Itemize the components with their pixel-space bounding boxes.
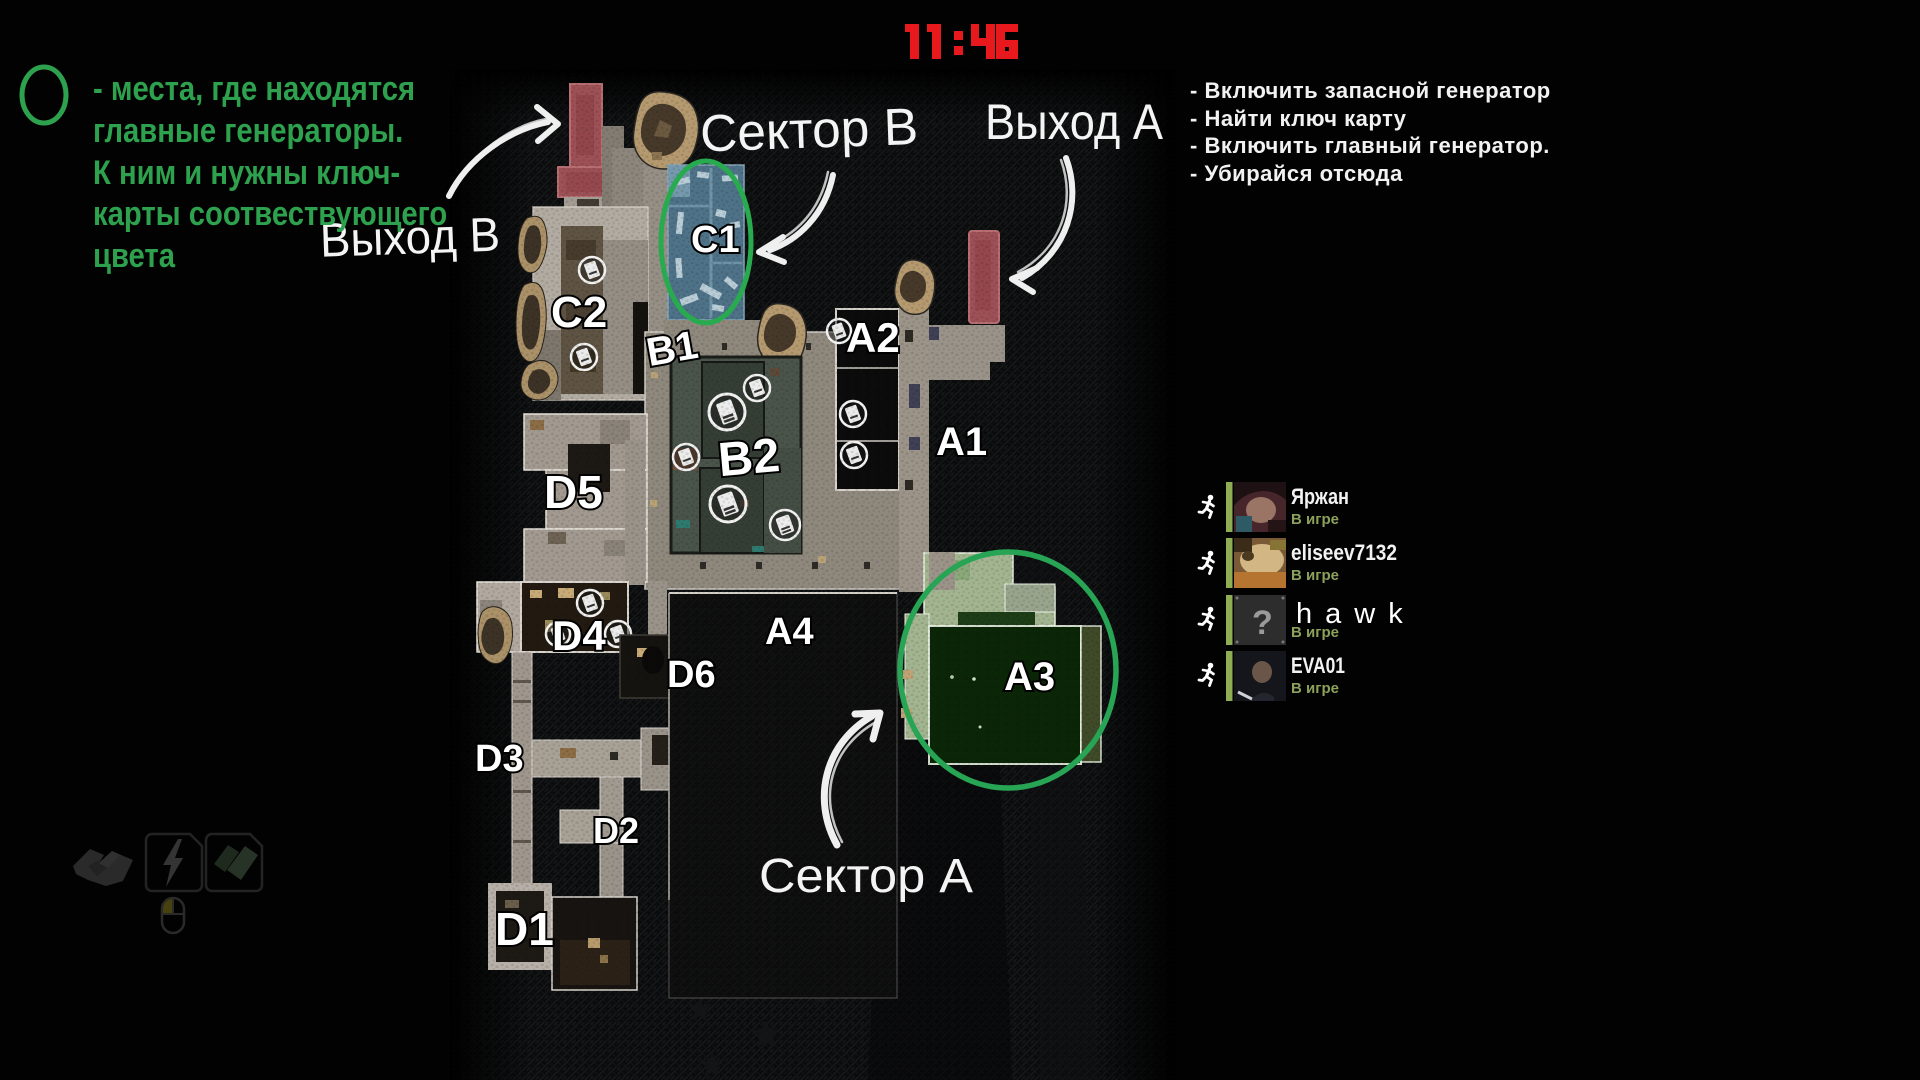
- svg-text:- Найти ключ карту: - Найти ключ карту: [1190, 106, 1407, 131]
- svg-text:A4: A4: [765, 611, 814, 653]
- svg-text:D5: D5: [544, 466, 603, 518]
- svg-text:D3: D3: [475, 738, 524, 780]
- svg-text:В игре: В игре: [1291, 567, 1339, 584]
- svg-text:A1: A1: [936, 420, 987, 464]
- svg-text:В игре: В игре: [1291, 624, 1339, 641]
- svg-text:цвета: цвета: [93, 236, 175, 275]
- svg-text:D4: D4: [552, 612, 606, 659]
- svg-text:D1: D1: [495, 903, 554, 955]
- svg-text:?: ?: [1252, 604, 1273, 642]
- svg-text:Выход A: Выход A: [985, 94, 1164, 150]
- svg-text:Яржан: Яржан: [1291, 484, 1349, 509]
- svg-text:A2: A2: [846, 314, 900, 361]
- svg-text:К ним и нужны ключ-: К ним и нужны ключ-: [93, 153, 400, 192]
- svg-text:- Убирайся отсюда: - Убирайся отсюда: [1190, 161, 1403, 186]
- svg-text:- Включить главный генератор.: - Включить главный генератор.: [1190, 133, 1550, 158]
- svg-text:B1: B1: [643, 323, 701, 375]
- svg-text:D2: D2: [593, 810, 639, 851]
- svg-text:EVA01: EVA01: [1291, 653, 1345, 678]
- svg-text:карты соотвествующего: карты соотвествующего: [93, 194, 447, 233]
- svg-text:В игре: В игре: [1291, 680, 1339, 697]
- svg-text:В игре: В игре: [1291, 511, 1339, 528]
- svg-text:eliseev7132: eliseev7132: [1291, 540, 1397, 565]
- svg-text:Сектор B: Сектор B: [699, 98, 919, 164]
- svg-text:- места, где находятся: - места, где находятся: [93, 69, 415, 108]
- svg-text:D6: D6: [667, 654, 716, 696]
- svg-text:- Включить запасной генератор: - Включить запасной генератор: [1190, 78, 1551, 103]
- svg-text:C1: C1: [691, 219, 740, 261]
- svg-text:Сектор A: Сектор A: [759, 850, 973, 903]
- svg-text:A3: A3: [1004, 655, 1055, 699]
- svg-text:C2: C2: [551, 288, 607, 337]
- svg-text:главные генераторы.: главные генераторы.: [93, 111, 403, 150]
- svg-text:B2: B2: [716, 429, 782, 487]
